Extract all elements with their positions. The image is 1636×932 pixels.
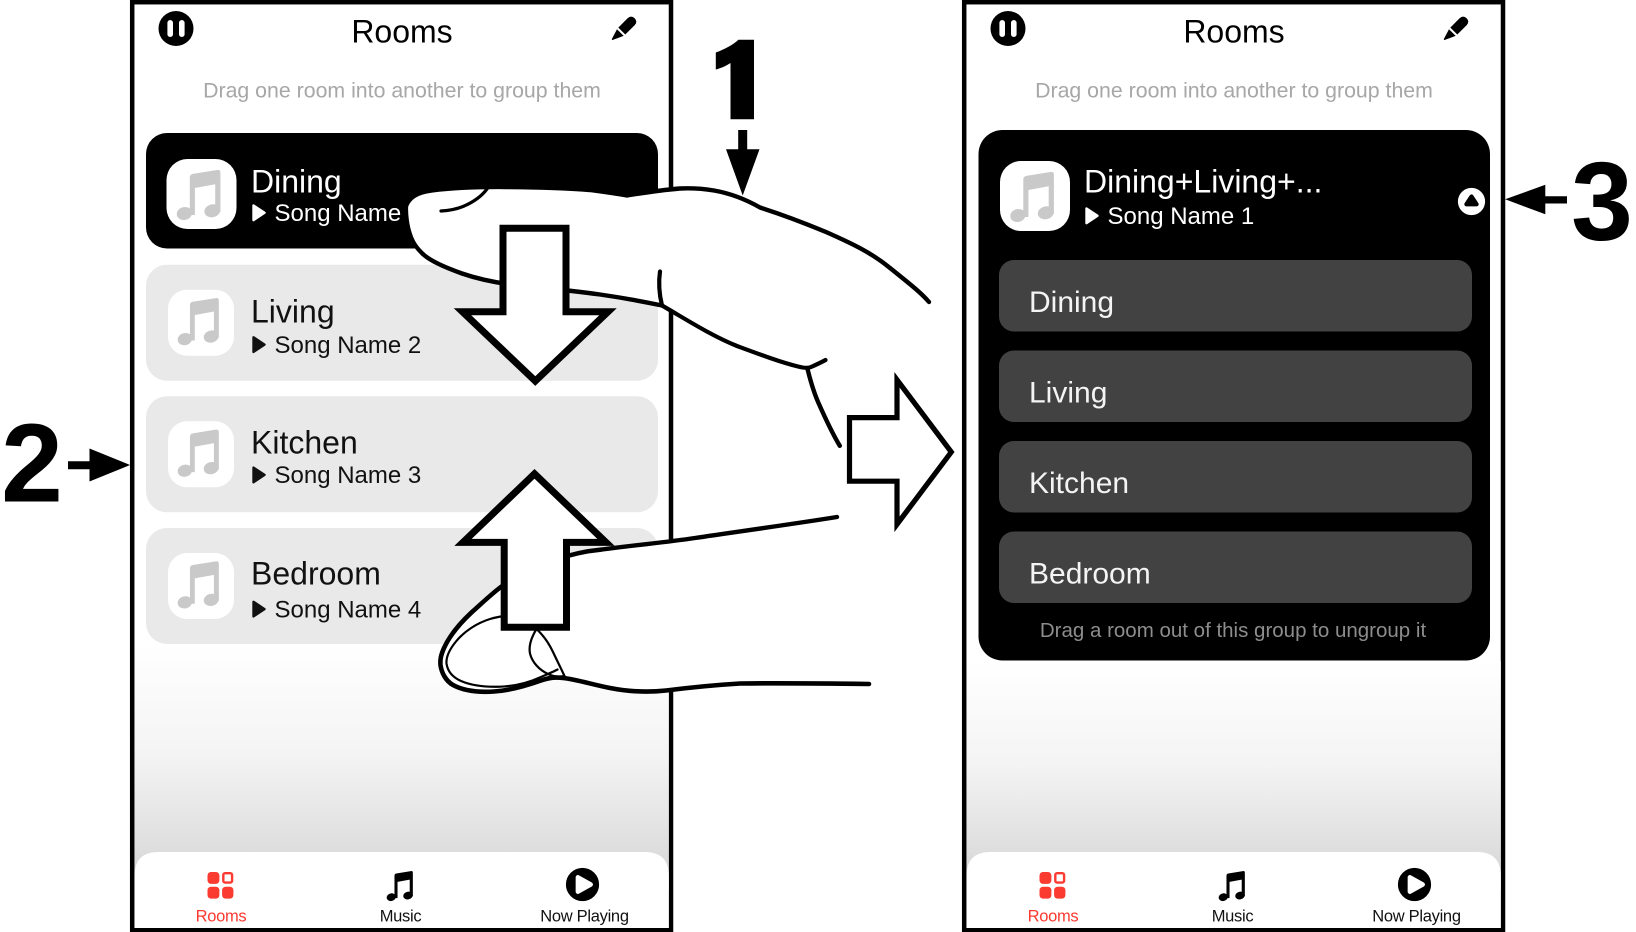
svg-text:Bedroom: Bedroom — [251, 556, 381, 592]
svg-text:Song Name 2: Song Name 2 — [275, 332, 422, 359]
svg-text:Rooms: Rooms — [196, 908, 247, 926]
svg-text:Living: Living — [251, 294, 335, 330]
svg-text:Drag a room out of this group: Drag a room out of this group to ungroup… — [1040, 619, 1427, 642]
svg-text:Dining: Dining — [251, 164, 342, 200]
svg-text:Rooms: Rooms — [1183, 14, 1284, 50]
svg-text:Song Name 4: Song Name 4 — [275, 596, 422, 623]
svg-text:Kitchen: Kitchen — [251, 425, 358, 461]
svg-text:Music: Music — [1212, 908, 1254, 926]
svg-text:Drag one room into another to: Drag one room into another to group them — [203, 79, 601, 103]
svg-text:Rooms: Rooms — [1028, 908, 1079, 926]
svg-text:Dining+Living+...: Dining+Living+... — [1084, 164, 1322, 200]
svg-text:2: 2 — [1, 402, 63, 526]
svg-text:Now Playing: Now Playing — [540, 908, 629, 926]
svg-text:Living: Living — [1029, 377, 1107, 410]
svg-text:Dining: Dining — [1029, 286, 1114, 319]
svg-text:Drag one room into another to: Drag one room into another to group them — [1035, 79, 1433, 103]
svg-text:Kitchen: Kitchen — [1029, 467, 1129, 500]
svg-text:Rooms: Rooms — [351, 14, 452, 50]
svg-text:Music: Music — [380, 908, 422, 926]
svg-text:Song Name 3: Song Name 3 — [275, 462, 422, 489]
svg-text:3: 3 — [1571, 140, 1633, 264]
svg-text:Now Playing: Now Playing — [1372, 908, 1461, 926]
svg-text:Song Name 1: Song Name 1 — [1108, 203, 1255, 230]
svg-text:Bedroom: Bedroom — [1029, 558, 1151, 591]
svg-text:Song Name 1: Song Name 1 — [275, 200, 422, 227]
